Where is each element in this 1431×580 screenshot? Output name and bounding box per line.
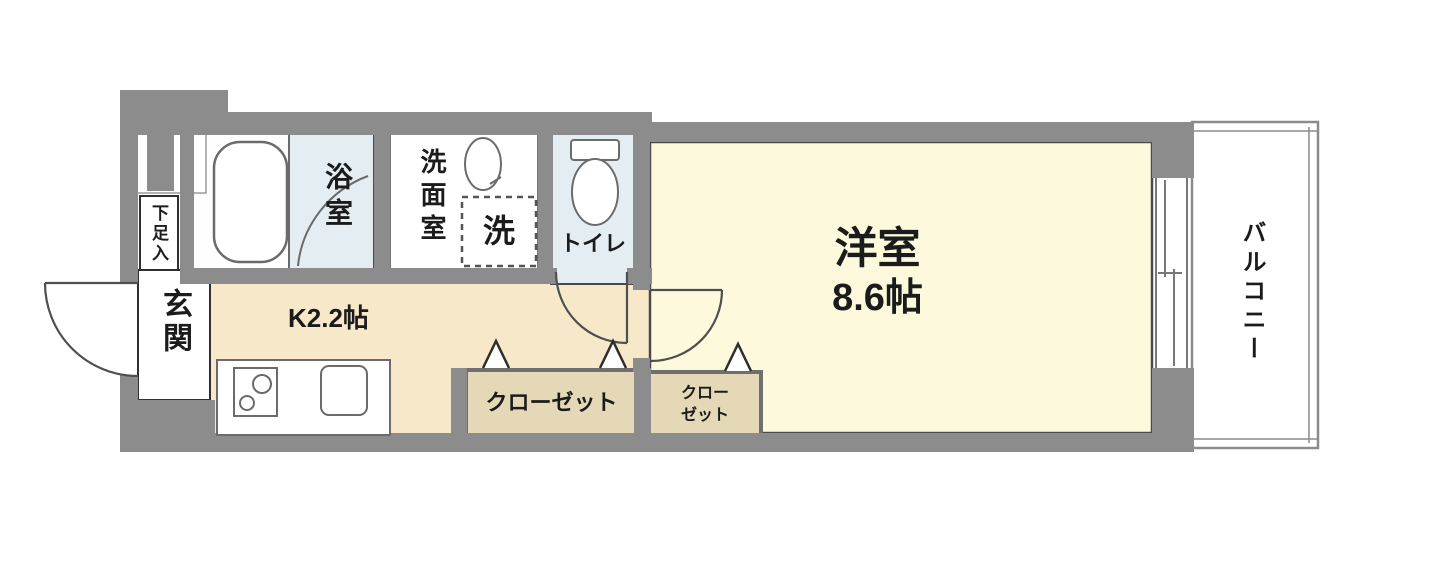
washer-space-label: 洗 [483, 215, 515, 247]
wall-top-left [120, 112, 652, 135]
wall-bath-washroom [374, 133, 390, 270]
kitchen-sink [321, 366, 367, 415]
toilet-tank [571, 140, 619, 160]
closet-small-label-line1: クロー [649, 383, 761, 405]
closet-small-label: クロー ゼット [649, 383, 761, 426]
wall-right-upper [1152, 122, 1194, 178]
main-room-size: 8.6帖 [655, 279, 1100, 317]
toilet-bowl [572, 159, 618, 225]
main-room-name: 洋室 [655, 228, 1100, 271]
toilet-label: トイレ [551, 233, 635, 255]
wall-closet-left [451, 368, 467, 437]
closet-large-label: クローゼット [466, 392, 637, 414]
sliding-window [1156, 178, 1187, 368]
main-room-label: 洋室 8.6帖 [655, 228, 1100, 317]
stove [234, 368, 277, 416]
entrance-label: 玄関 [159, 288, 189, 356]
bathtub [214, 142, 287, 262]
wall-right-lower [1152, 368, 1194, 452]
washroom-label: 洗面室 [419, 148, 445, 247]
floor-plan: 下足入 玄関 浴室 洗面室 洗 トイレ K2.2帖 洋室 8.6帖 クローゼット… [0, 0, 1431, 580]
bathroom-label: 浴室 [323, 162, 351, 234]
pipe-space-block [147, 131, 174, 191]
wall-top-main [633, 122, 1194, 142]
shoe-storage-label: 下足入 [150, 204, 167, 264]
wall-wetrow-bottom-right [627, 268, 652, 284]
wall-bath-left [180, 133, 194, 270]
stove-burner-small [240, 396, 254, 410]
wall-wetrow-bottom-left [180, 268, 557, 284]
stove-burner-large [253, 375, 271, 393]
closet-small-label-line2: ゼット [649, 405, 761, 427]
kitchen-label: K2.2帖 [288, 305, 369, 331]
washbasin [465, 138, 501, 190]
wall-toilet-mainroom [633, 125, 650, 290]
wall-left-upper [120, 112, 138, 283]
entrance-door-swing [45, 283, 138, 376]
balcony-label: バルコニー [1239, 220, 1263, 365]
